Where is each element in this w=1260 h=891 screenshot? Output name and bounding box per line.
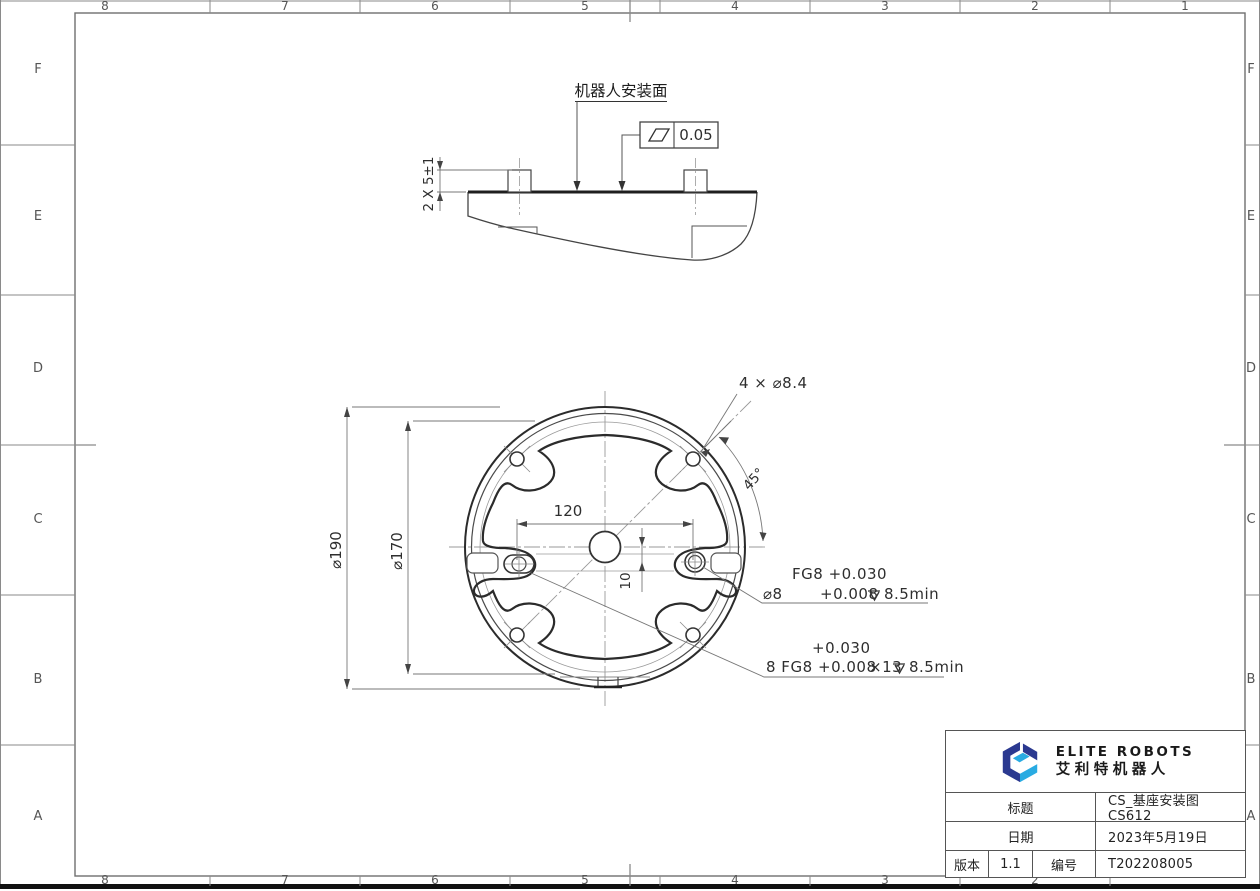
zone-number: 7	[281, 0, 289, 13]
zone-number: 6	[431, 0, 439, 13]
zone-number: 3	[881, 873, 889, 887]
zone-number: 4	[731, 0, 739, 13]
zone-number: 7	[281, 873, 289, 887]
pin-note-dia: ⌀8	[763, 585, 783, 603]
leader-arrow	[574, 181, 581, 191]
zone-number: 3	[881, 0, 889, 13]
boss-centerlines	[520, 158, 696, 215]
date-value: 2023年5月19日	[1096, 822, 1245, 850]
dimensions: ⌀190 ⌀170 120 10	[327, 374, 808, 689]
dim-offset: 10	[618, 528, 645, 592]
zone-letter: B	[1247, 672, 1256, 687]
version-row: 版本 1.1 编号 T202208005	[946, 850, 1245, 877]
title-label: 标题	[946, 793, 1096, 821]
zone-number: 8	[101, 873, 109, 887]
bolt-circle-text: ⌀170	[388, 532, 406, 570]
front-view	[449, 391, 767, 706]
brand-name: ELITE ROBOTS	[1056, 744, 1195, 761]
mount-holes-callout: 4 × ⌀8.4	[701, 374, 808, 457]
zone-letter: D	[1246, 361, 1256, 376]
zone-number: 5	[581, 0, 589, 13]
zone-letter: A	[34, 809, 43, 824]
hole-spacing-text: 120	[554, 502, 583, 520]
zone-number: 8	[101, 0, 109, 13]
zone-number: 2	[1031, 0, 1039, 13]
slot-note-upper: +0.030	[812, 639, 871, 657]
zone-letter: C	[33, 512, 42, 527]
center-hole	[590, 532, 621, 563]
boss-height-dimension: 2 X 5±1	[421, 157, 512, 212]
slot-note-length: ×13	[869, 658, 902, 676]
brand-name-cn: 艾利特机器人	[1056, 761, 1195, 779]
version-label: 版本	[946, 851, 989, 877]
number-label: 编号	[1033, 851, 1096, 877]
brand-row: ELITE ROBOTS 艾利特机器人	[946, 731, 1245, 792]
zone-letter: B	[34, 672, 43, 687]
mount-holes-label: 4 × ⌀8.4	[739, 374, 808, 392]
mount-hole	[510, 452, 524, 466]
zone-number: 5	[581, 873, 589, 887]
zone-letter: D	[33, 361, 43, 376]
title-row: 标题 CS_基座安装图 CS612	[946, 792, 1245, 821]
drawing-sheet: 8 7 6 5 4 3 2 1 8 7 6 5 4 3 2 F E D C B …	[0, 0, 1260, 891]
mount-hole	[686, 452, 700, 466]
date-label: 日期	[946, 822, 1096, 850]
right-notch	[692, 226, 747, 258]
zone-letter: A	[1247, 809, 1256, 824]
boss-height-text: 2 X 5±1	[421, 157, 437, 212]
slot-note-prefix: 8 FG8	[766, 658, 813, 676]
number-value: T202208005	[1096, 851, 1245, 877]
flatness-value: 0.05	[679, 126, 712, 144]
zone-letter: F	[1247, 62, 1254, 77]
pin-note-depth: 8.5min	[884, 585, 939, 603]
left-recess-slot	[467, 553, 498, 573]
title-block: ELITE ROBOTS 艾利特机器人 标题 CS_基座安装图 CS612 日期…	[945, 730, 1246, 878]
zone-letter: E	[1247, 209, 1255, 224]
slot-note-lower: +0.008	[818, 658, 877, 676]
zone-letter: F	[34, 62, 41, 77]
right-recess-slot	[711, 553, 741, 573]
zone-letter: E	[34, 209, 42, 224]
angle-text: 45°	[740, 465, 768, 493]
title-value: CS_基座安装图 CS612	[1096, 793, 1245, 821]
leader-arrow	[619, 181, 626, 191]
elite-robots-logo-icon	[997, 741, 1043, 783]
pin-note-line1: FG8 +0.030	[792, 565, 887, 583]
zone-number: 6	[431, 873, 439, 887]
outer-diameter-text: ⌀190	[327, 531, 345, 569]
version-value: 1.1	[989, 851, 1033, 877]
surface-label: 机器人安装面	[574, 82, 667, 100]
zone-letter: C	[1246, 512, 1255, 527]
pin-note-tol: +0.008	[820, 585, 879, 603]
side-view: 机器人安装面 0.05 2 X 5±1	[421, 82, 757, 260]
offset-text: 10	[618, 572, 634, 589]
mount-hole	[686, 628, 700, 642]
mount-hole	[510, 628, 524, 642]
date-row: 日期 2023年5月19日	[946, 821, 1245, 850]
slot-note-depth: 8.5min	[909, 658, 964, 676]
zone-number: 1	[1181, 0, 1189, 13]
zone-number: 4	[731, 873, 739, 887]
